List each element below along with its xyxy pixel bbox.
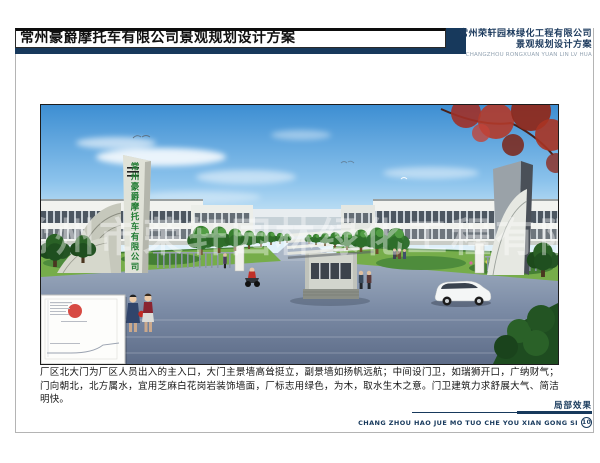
footer-pinyin-line: CHANG ZHOU HAO JUE MO TUO CHE YOU XIAN G… [358,417,592,428]
page-number-badge: 10 [581,417,592,428]
description-paragraph: 厂区北大门为厂区人员出入的主入口，大门主景墙高耸挺立，副景墙如扬帆远航；中间设门… [40,366,559,407]
inset-plan [41,295,127,364]
page-title: 常州豪爵摩托车有限公司景观规划设计方案 [15,28,446,48]
footer-pinyin-text: CHANG ZHOU HAO JUE MO TUO CHE YOU XIAN G… [358,419,578,427]
company-block: 常州荣轩园林绿化工程有限公司 景观规划设计方案 CHANGZHOU RONGXU… [459,29,592,58]
gate-pylon-vertical-text: 常州豪爵摩托车有限公司 [129,162,139,278]
footer-rule [412,411,592,414]
company-pinyin: CHANGZHOU RONGXUAN YUAN LIN LV HUA [459,52,592,58]
rendering-scene [41,105,558,364]
red-seal-stamp [68,304,82,318]
rendering-image: 常州市荣轩园林绿化工程有限公司 常州豪爵摩托车有限公司 [40,104,559,365]
footer-caption: 局部效果 [554,399,592,411]
presentation-board: 常州豪爵摩托车有限公司景观规划设计方案 常州荣轩园林绿化工程有限公司 景观规划设… [0,0,600,463]
company-subtitle: 景观规划设计方案 [459,40,592,51]
company-name: 常州荣轩园林绿化工程有限公司 [459,29,592,40]
header-accent-bar [15,48,466,54]
